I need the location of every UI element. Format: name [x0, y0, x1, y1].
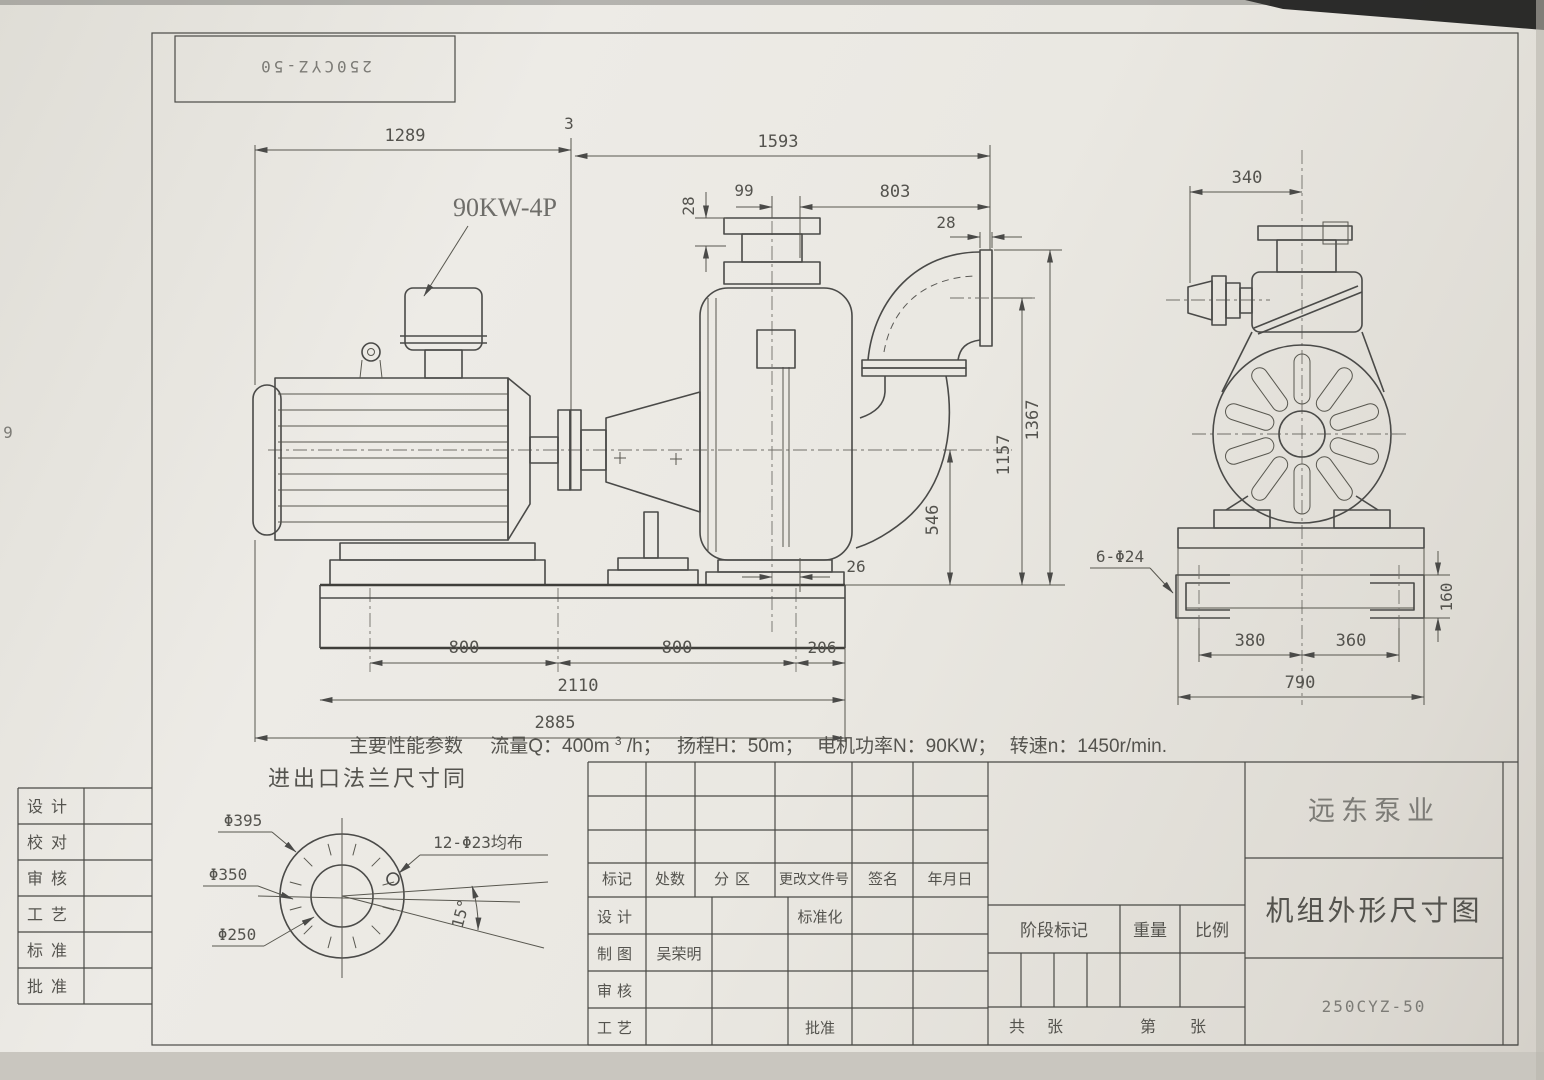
th-doc-no: 更改文件号 — [779, 871, 849, 887]
sheet-total-suffix: 张 — [1047, 1018, 1063, 1036]
dim-99: 99 — [734, 181, 772, 207]
motor — [253, 343, 545, 585]
svg-text:1593: 1593 — [758, 132, 799, 152]
svg-text:28: 28 — [936, 213, 955, 232]
svg-text:Φ350: Φ350 — [209, 865, 248, 884]
drawing-model: 250CYZ-50 — [1322, 997, 1427, 1016]
svg-text:380: 380 — [1235, 631, 1266, 651]
side-outlet-stub — [1188, 276, 1252, 325]
front-view — [253, 138, 1035, 672]
svg-text:12-Φ23均布: 12-Φ23均布 — [433, 833, 523, 852]
dim-803: 803 — [800, 182, 990, 207]
svg-text:28: 28 — [679, 196, 698, 215]
dim-546: 546 — [923, 450, 950, 585]
svg-text:160: 160 — [1437, 583, 1456, 612]
row-design: 设计 — [597, 909, 637, 926]
svg-text:546: 546 — [923, 505, 943, 536]
flange-dia-250: Φ250 — [212, 917, 314, 946]
dim-1289: 1289 — [255, 126, 571, 150]
motor-terminal-box — [400, 288, 487, 378]
dim-360: 360 — [1302, 631, 1399, 655]
performance-line: 主要性能参数 流量Q：400m 3 /h； 扬程H：50m； 电机功率N：90K… — [349, 729, 1167, 757]
svg-text:2885: 2885 — [535, 713, 576, 733]
left-row-standard: 标准 — [27, 942, 75, 960]
dim-28-inlet: 28 — [679, 192, 706, 272]
left-row-process: 工艺 — [27, 906, 75, 924]
company-name: 远东泵业 — [1308, 796, 1440, 826]
svg-text:1157: 1157 — [994, 435, 1014, 476]
drawing-title: 机组外形尺寸图 — [1265, 895, 1482, 926]
flange-dia-395: Φ395 — [218, 811, 296, 852]
sheet-no-prefix: 第 — [1140, 1018, 1156, 1036]
svg-text:803: 803 — [880, 182, 911, 202]
row-process: 工艺 — [597, 1020, 637, 1037]
row-draft: 制图 — [597, 946, 637, 963]
motor-power-label: 90KW-4P — [424, 193, 557, 296]
weight: 重量 — [1133, 921, 1167, 940]
svg-text:26: 26 — [846, 557, 865, 576]
drawing-photo: 250CYZ-50 9 — [0, 0, 1544, 1080]
pump-outline-drawing: 250CYZ-50 9 — [0, 0, 1544, 1080]
perf-flow: 流量Q：400m — [490, 735, 609, 757]
left-row-approve: 批准 — [27, 978, 75, 996]
model-box: 250CYZ-50 — [175, 36, 455, 102]
edge-digit: 9 — [3, 423, 13, 442]
dim-790: 790 — [1178, 673, 1424, 697]
svg-text:2110: 2110 — [558, 676, 599, 696]
th-mark: 标记 — [602, 871, 632, 888]
th-date: 年月日 — [927, 871, 972, 888]
dim-1593: 1593 — [575, 132, 990, 156]
side-base — [1176, 496, 1424, 628]
model-top-label: 250CYZ-50 — [258, 57, 372, 76]
sheet-total-prefix: 共 — [1009, 1018, 1025, 1036]
dim-1367: 1367 — [1023, 250, 1050, 585]
svg-text:Φ395: Φ395 — [224, 811, 263, 830]
svg-text:800: 800 — [662, 638, 693, 658]
bolt-hole — [387, 873, 399, 885]
perf-head: 扬程H：50m； — [677, 735, 804, 757]
bearing-bracket — [606, 392, 700, 585]
svg-text:340: 340 — [1232, 168, 1263, 188]
perf-flow-unit: /h； — [627, 736, 662, 757]
side-discharge-flange — [1258, 226, 1352, 272]
flange-dia-350: Φ350 — [203, 865, 293, 899]
left-row-proofread: 校对 — [27, 834, 75, 852]
th-zone: 分区 — [714, 871, 756, 888]
svg-text:1289: 1289 — [385, 126, 426, 146]
stage-mark: 阶段标记 — [1020, 921, 1088, 940]
sheet-no-suffix: 张 — [1190, 1018, 1206, 1036]
row-check: 审核 — [597, 983, 637, 1000]
th-count: 处数 — [655, 871, 685, 888]
casing-handhole — [757, 330, 795, 368]
dim-28-outlet: 28 — [936, 213, 1022, 237]
svg-text:90KW-4P: 90KW-4P — [453, 193, 557, 222]
perf-power: 电机功率N：90KW； — [817, 735, 996, 757]
side-casing-top — [1252, 222, 1362, 334]
dim-800-left: 800 — [370, 638, 558, 663]
scale: 比例 — [1195, 921, 1229, 940]
perf-label: 主要性能参数 — [349, 735, 463, 757]
title-block: 标记 处数 分区 更改文件号 签名 年月日 设计 标准化 制图 吴荣明 审核 工… — [588, 762, 1518, 1045]
sheet-border — [152, 33, 1518, 1045]
flange-detail: 进出口法兰尺寸同 — [203, 766, 548, 978]
row-standardization: 标准化 — [797, 909, 842, 926]
perf-flow-sup: 3 — [615, 734, 622, 748]
svg-text:主要性能参数 流量Q：400m 3: 主要性能参数 流量Q：400m 3 /h； 扬程H：50m； 电机功率N：90K… — [349, 729, 1167, 757]
dim-380: 380 — [1199, 631, 1302, 655]
dim-800-right: 800 — [558, 638, 796, 663]
svg-text:Φ250: Φ250 — [218, 925, 257, 944]
dim-160: 160 — [1424, 551, 1456, 642]
side-dimensions: 340 6-Φ24 160 380 360 790 — [1090, 168, 1456, 705]
side-view — [1166, 150, 1424, 705]
svg-text:800: 800 — [449, 638, 480, 658]
svg-text:360: 360 — [1336, 631, 1367, 651]
dim-3: 3 — [564, 114, 574, 133]
svg-text:99: 99 — [734, 181, 753, 200]
discharge-elbow — [856, 250, 1035, 548]
dim-2885: 2885 — [255, 713, 845, 738]
dim-340: 340 — [1190, 168, 1302, 192]
svg-text:206: 206 — [808, 638, 837, 657]
svg-text:3: 3 — [564, 114, 574, 133]
left-row-design: 设计 — [27, 798, 75, 816]
dim-2110: 2110 — [320, 676, 845, 700]
dim-206: 206 — [796, 638, 845, 663]
bolt-note: 6-Φ24 — [1090, 547, 1173, 593]
flange-detail-title: 进出口法兰尺寸同 — [268, 766, 468, 791]
dim-1157: 1157 — [994, 298, 1022, 585]
left-row-check: 审核 — [27, 870, 75, 888]
drafter-name: 吴荣明 — [656, 946, 701, 963]
pump-casing — [700, 288, 852, 585]
flange-holes-note: 12-Φ23均布 — [399, 833, 548, 873]
svg-text:1367: 1367 — [1023, 400, 1043, 441]
baseplate — [320, 585, 845, 648]
flange-angle: 15° — [448, 897, 474, 930]
perf-speed: 转速n：1450r/min. — [1010, 735, 1167, 757]
row-approve: 批准 — [805, 1020, 835, 1037]
svg-text:6-Φ24: 6-Φ24 — [1096, 547, 1144, 566]
left-signature-block: 设计 校对 审核 工艺 标准 批准 — [18, 788, 152, 1004]
th-signature: 签名 — [868, 871, 898, 888]
svg-text:790: 790 — [1285, 673, 1316, 693]
